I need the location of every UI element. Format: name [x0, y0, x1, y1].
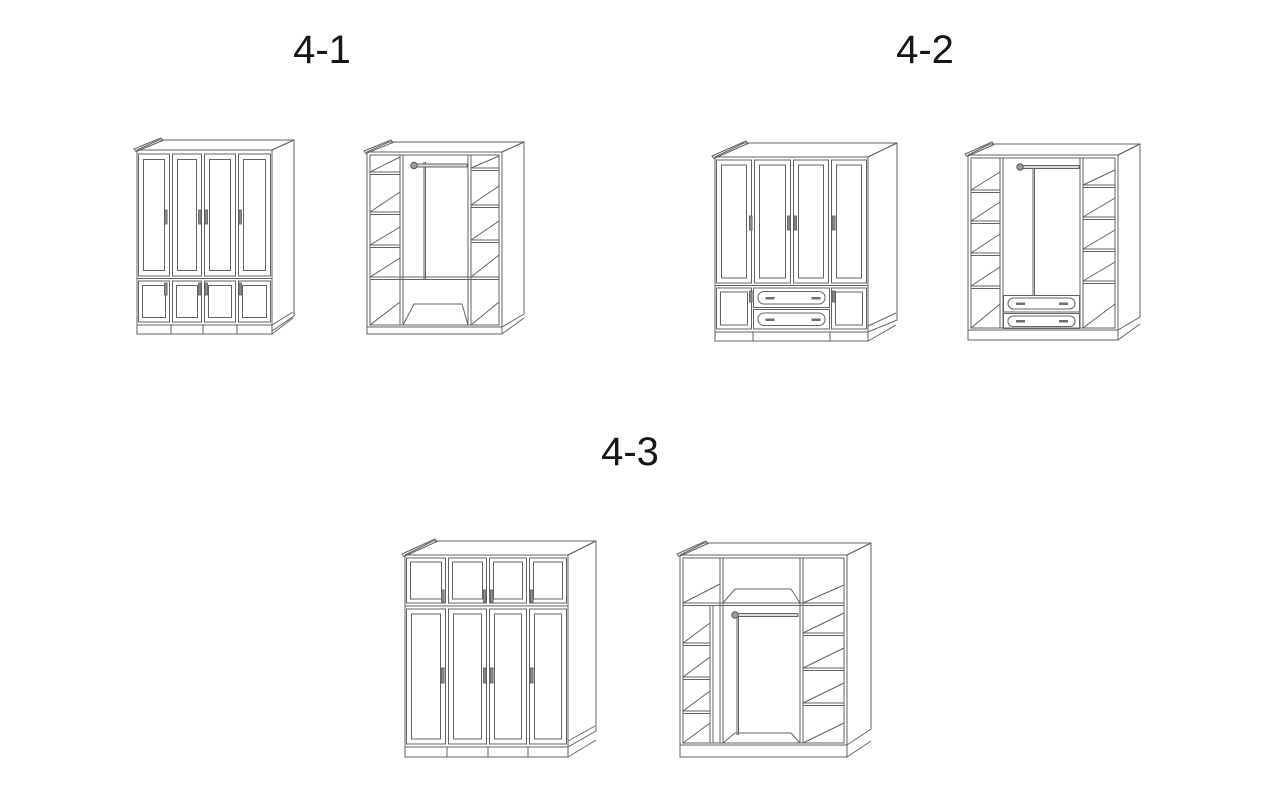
side-panel: [568, 541, 596, 747]
side-panel: [868, 143, 897, 332]
side-panel: [847, 543, 871, 757]
lower-doors: [717, 288, 867, 329]
side-panel: [1118, 144, 1140, 340]
center-bottom-compartment: [723, 733, 800, 743]
plinth: [405, 740, 596, 757]
hanging-rod-icon: [1017, 164, 1079, 170]
top-cornice: [402, 539, 596, 557]
top-cornice: [677, 541, 871, 557]
plinth: [968, 330, 1118, 340]
bottom-compartment-row: [370, 277, 499, 325]
left-shelf-column: [971, 172, 1000, 328]
diagram-canvas: 4-1 4-2 4-3: [0, 0, 1280, 800]
side-panel: [502, 142, 524, 334]
drawers: [1004, 296, 1080, 329]
plinth: [680, 745, 847, 757]
figure-4-3-interior-wardrobe-drawing: [672, 533, 872, 768]
figure-4-2-label: 4-2: [865, 26, 985, 74]
figure-4-2-closed-wardrobe-drawing: [708, 132, 903, 347]
right-shelf-column: [471, 156, 499, 277]
top-cornice: [134, 138, 294, 152]
top-shelf-row: [683, 584, 844, 606]
cabinet-front: [715, 157, 868, 332]
top-cornice: [364, 140, 524, 154]
figure-4-3-label: 4-3: [570, 428, 690, 476]
tall-doors: [139, 154, 271, 276]
partitions: [400, 155, 471, 325]
drawers: [754, 288, 830, 329]
partitions: [1000, 158, 1083, 328]
partitions: [710, 558, 803, 743]
right-shelf-column: [803, 613, 844, 743]
tall-doors: [407, 609, 567, 744]
top-small-doors: [407, 558, 567, 603]
figure-4-1-label: 4-1: [262, 26, 382, 74]
tall-door-handles: [750, 216, 836, 230]
top-cornice: [965, 142, 1140, 157]
left-shelf-column: [370, 157, 400, 277]
figure-4-1-closed-wardrobe-drawing: [120, 128, 310, 343]
carcase: [680, 555, 847, 745]
right-shelf-column: [1083, 170, 1115, 328]
figure-4-2-interior-wardrobe-drawing: [962, 132, 1144, 347]
hanging-rod-icon: [411, 162, 467, 168]
plinth: [367, 327, 502, 334]
lower-doors: [139, 281, 271, 322]
hanging-rod-icon: [732, 612, 798, 618]
figure-4-3-closed-wardrobe-drawing: [398, 533, 602, 768]
carcase: [968, 155, 1118, 330]
side-panel: [272, 140, 294, 331]
plinth: [137, 318, 293, 334]
left-shelf-column: [683, 623, 710, 743]
tall-doors: [717, 160, 867, 283]
tall-door-handles: [165, 210, 242, 224]
plinth: [715, 325, 896, 341]
figure-4-1-interior-wardrobe-drawing: [358, 128, 530, 343]
